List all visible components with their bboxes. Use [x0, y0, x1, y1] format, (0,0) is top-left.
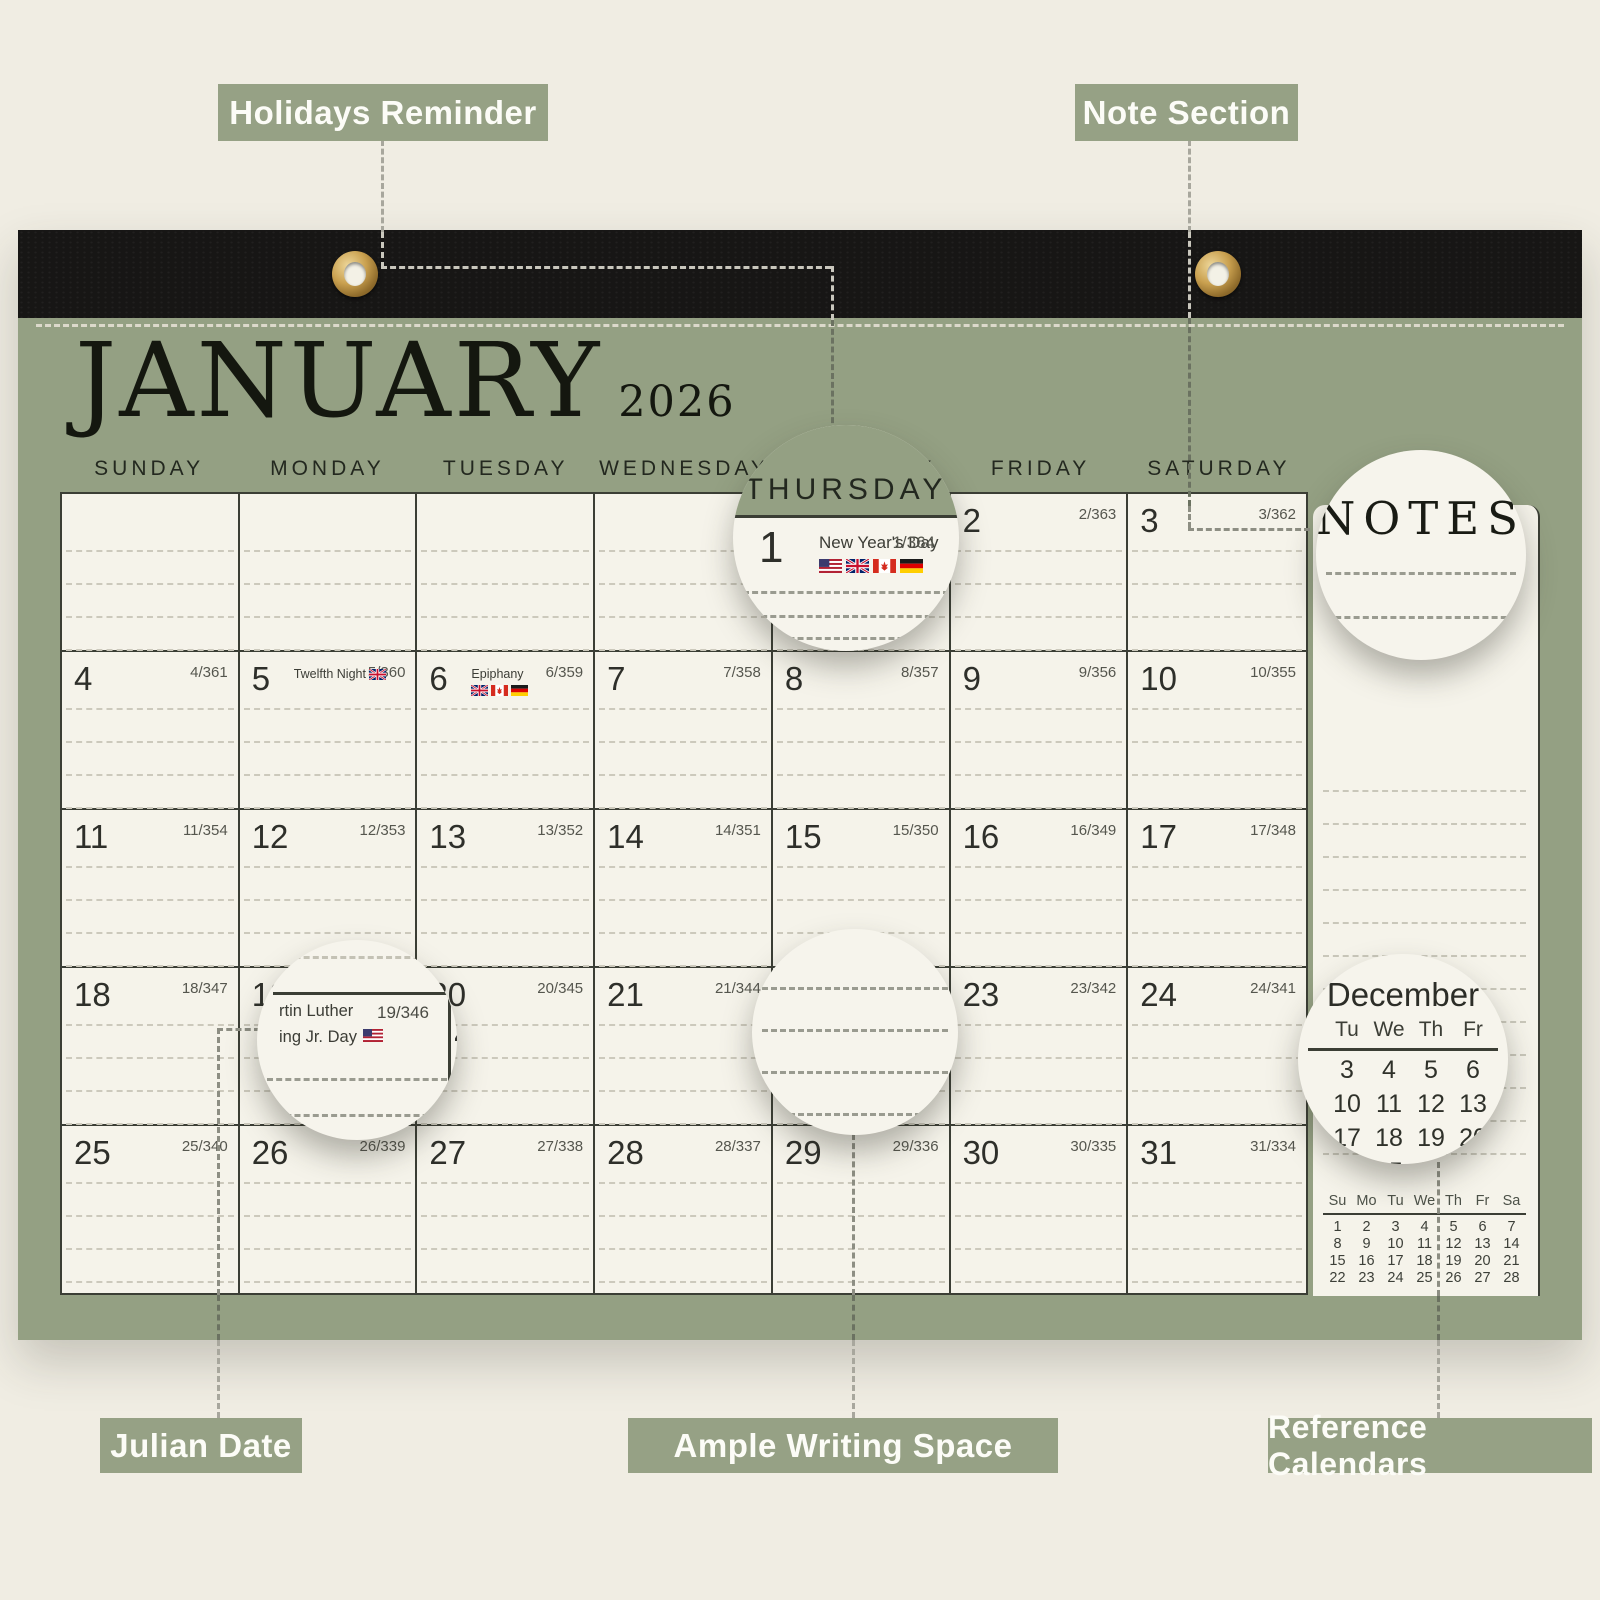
- connector-reference: [1437, 1296, 1440, 1340]
- julian-date: 11/354: [183, 822, 228, 839]
- mini-date: 4: [1410, 1219, 1439, 1235]
- holiday-text: Epiphany: [471, 667, 523, 681]
- date-number: 12: [252, 818, 289, 856]
- writing-line: [66, 1123, 234, 1125]
- mini-date: 20: [1468, 1253, 1497, 1269]
- mini-weekday: Su: [1323, 1193, 1352, 1209]
- magnifier-notes: NOTES: [1316, 450, 1526, 660]
- connector-holidays: [381, 266, 831, 269]
- holiday-name: Epiphany: [471, 666, 575, 699]
- writing-line: [244, 807, 412, 809]
- day-cell: 44/361: [62, 652, 240, 810]
- mini-date: 6: [1452, 1056, 1494, 1085]
- weekday-header: SATURDAY: [1130, 457, 1308, 491]
- day-cell: 2525/340: [62, 1126, 240, 1293]
- date-number: 6: [429, 660, 447, 698]
- writing-line: [955, 649, 1123, 651]
- notes-line: [1323, 823, 1526, 825]
- writing-line: [955, 1281, 1123, 1283]
- mini-weekday: Sa: [1497, 1193, 1526, 1209]
- writing-line: [955, 583, 1123, 585]
- connector-holidays: [381, 232, 384, 268]
- writing-line: [777, 899, 945, 901]
- mini-date: 24: [1326, 1158, 1368, 1164]
- julian-date: 20/345: [537, 980, 583, 997]
- writing-line: [421, 708, 589, 710]
- weekday-header: FRIDAY: [951, 457, 1129, 491]
- flag-ca-icon: [873, 559, 896, 573]
- writing-line: [421, 1248, 589, 1250]
- writing-line: [66, 583, 234, 585]
- writing-line: [599, 1182, 767, 1184]
- mini-date: 5: [1410, 1056, 1452, 1085]
- day-cell: [417, 494, 595, 652]
- date-number: 18: [74, 976, 111, 1014]
- writing-line: [421, 965, 589, 967]
- writing-line: [66, 1248, 234, 1250]
- label-julian-date: Julian Date: [100, 1418, 302, 1473]
- writing-line: [599, 1248, 767, 1250]
- day-cell: 77/358: [595, 652, 773, 810]
- day-cell: 66/359Epiphany: [417, 652, 595, 810]
- writing-line: [66, 932, 234, 934]
- mini-date: 9: [1352, 1236, 1381, 1252]
- writing-line: [599, 1281, 767, 1283]
- month-name: JANUARY: [75, 321, 602, 441]
- date-number: 25: [74, 1134, 111, 1172]
- writing-line: [955, 1123, 1123, 1125]
- label-ample-writing-space: Ample Writing Space: [628, 1418, 1058, 1473]
- month-grid: 11/364New Year's Day 22/36333/36244/3615…: [60, 492, 1308, 1295]
- julian-date: 9/356: [1079, 664, 1117, 681]
- mini-calendar-february: SuMoTuWeThFrSa 1234567891011121314151617…: [1323, 1193, 1526, 1286]
- mini-date: 5: [1439, 1219, 1468, 1235]
- mini-date: 10: [1381, 1236, 1410, 1252]
- writing-line: [66, 866, 234, 868]
- flag-ca-icon: [491, 685, 508, 696]
- julian-date: 30/335: [1070, 1138, 1116, 1155]
- magnified-julian-date: 19/346: [377, 1003, 429, 1023]
- day-cell: 2929/336: [773, 1126, 951, 1293]
- date-number: 31: [1140, 1134, 1177, 1172]
- date-number: 28: [607, 1134, 644, 1172]
- date-number: 23: [963, 976, 1000, 1014]
- writing-line: [421, 583, 589, 585]
- notes-line: [1323, 922, 1526, 924]
- writing-line: [66, 649, 234, 651]
- flag-us-icon: [819, 559, 842, 573]
- day-cell: 2121/344: [595, 968, 773, 1126]
- writing-line: [421, 1215, 589, 1217]
- day-cell: 33/362: [1128, 494, 1306, 652]
- date-number: 14: [607, 818, 644, 856]
- writing-line: [244, 583, 412, 585]
- writing-line: [66, 1057, 234, 1059]
- writing-line: [777, 1281, 945, 1283]
- connector-reference: [1437, 1162, 1440, 1296]
- writing-line: [1132, 708, 1302, 710]
- cell-border-line: [448, 992, 451, 1140]
- writing-line: [955, 932, 1123, 934]
- writing-line: [66, 1090, 234, 1092]
- writing-line: [244, 1281, 412, 1283]
- writing-line: [955, 741, 1123, 743]
- writing-line: [421, 741, 589, 743]
- writing-line: [421, 774, 589, 776]
- label-reference-calendars: Reference Calendars: [1268, 1418, 1592, 1473]
- mini-date: 25: [1410, 1270, 1439, 1286]
- writing-line: [599, 866, 767, 868]
- mini-date: 3: [1381, 1219, 1410, 1235]
- writing-line: [955, 1090, 1123, 1092]
- day-cell: 88/357: [773, 652, 951, 810]
- date-number: 9: [963, 660, 981, 698]
- day-cell: 99/356: [951, 652, 1129, 810]
- day-cell: 2323/342: [951, 968, 1129, 1126]
- writing-line: [1132, 932, 1302, 934]
- date-number: 2: [963, 502, 981, 540]
- julian-date: 24/341: [1250, 980, 1296, 997]
- partial-next-date: 2: [453, 1006, 457, 1051]
- writing-line: [244, 866, 412, 868]
- mini-date: 19: [1439, 1253, 1468, 1269]
- writing-line: [1132, 1182, 1302, 1184]
- writing-line: [599, 774, 767, 776]
- writing-line: [66, 708, 234, 710]
- julian-date: 29/336: [893, 1138, 939, 1155]
- writing-line: [599, 1090, 767, 1092]
- julian-date: 8/357: [901, 664, 939, 681]
- writing-line: [1132, 1281, 1302, 1283]
- writing-line: [421, 1090, 589, 1092]
- writing-line: [599, 1123, 767, 1125]
- writing-line: [421, 866, 589, 868]
- writing-line: [1132, 1215, 1302, 1217]
- mini-weekday: We: [1410, 1193, 1439, 1209]
- connector-ample-writing: [852, 1295, 855, 1340]
- mini-date: 3: [1326, 1056, 1368, 1085]
- writing-line: [955, 616, 1123, 618]
- julian-date: 3/362: [1258, 506, 1296, 523]
- magnified-notes-title: NOTES: [1316, 492, 1526, 545]
- writing-line: [421, 616, 589, 618]
- writing-line: [244, 1215, 412, 1217]
- day-cell: 55/360Twelfth Night: [240, 652, 418, 810]
- holiday-flags: [471, 685, 528, 696]
- writing-line: [955, 1057, 1123, 1059]
- mini-weekday: Th: [1410, 1018, 1452, 1042]
- writing-line: [421, 1281, 589, 1283]
- julian-date: 17/348: [1250, 822, 1296, 839]
- day-cell: 2727/338: [417, 1126, 595, 1293]
- date-number: 21: [607, 976, 644, 1014]
- connector-note-section: [1188, 528, 1310, 531]
- connector-julian-date: [217, 1340, 220, 1418]
- writing-line: [955, 866, 1123, 868]
- julian-date: 21/344: [715, 980, 761, 997]
- flag-uk-icon: [846, 559, 869, 573]
- mini-date: 7: [1497, 1219, 1526, 1235]
- mini-weekday: We: [1368, 1018, 1410, 1042]
- leather-hanging-strip: [18, 230, 1582, 318]
- mini-date: 15: [1323, 1253, 1352, 1269]
- mini-date: 12: [1410, 1090, 1452, 1119]
- writing-line: [955, 965, 1123, 967]
- mini-date: 8: [1323, 1236, 1352, 1252]
- writing-line: [421, 1123, 589, 1125]
- mini-date: 22: [1323, 1270, 1352, 1286]
- writing-line: [66, 899, 234, 901]
- mini-weekday: Fr: [1468, 1193, 1497, 1209]
- magnified-date: 1: [759, 523, 783, 573]
- mini-date: 20: [1452, 1124, 1494, 1153]
- magnified-holiday-line2: ing Jr. Day: [279, 1028, 383, 1047]
- day-cell: 1818/347: [62, 968, 240, 1126]
- magnified-thursday-header: THURSDAY: [733, 473, 959, 507]
- writing-line: [1132, 965, 1302, 967]
- cell-border-line: [273, 992, 449, 995]
- writing-line: [599, 649, 767, 651]
- julian-date: 10/355: [1250, 664, 1296, 681]
- writing-line: [1132, 1057, 1302, 1059]
- date-number: 17: [1140, 818, 1177, 856]
- writing-line: [421, 649, 589, 651]
- mini-date: 23: [1352, 1270, 1381, 1286]
- julian-date: 13/352: [537, 822, 583, 839]
- flag-de-icon: [511, 685, 528, 696]
- connector-julian-date: [217, 1295, 220, 1340]
- writing-line: [1132, 1090, 1302, 1092]
- writing-line: [244, 1182, 412, 1184]
- mini-date: 11: [1410, 1236, 1439, 1252]
- mini-weekday: Mo: [1352, 1193, 1381, 1209]
- connector-holidays: [381, 140, 384, 232]
- mini-weekday: Th: [1439, 1193, 1468, 1209]
- connector-note-section: [1188, 232, 1191, 318]
- connector-ample-writing: [852, 1340, 855, 1418]
- magnified-december-title: December: [1298, 976, 1508, 1014]
- magnifier-new-years-day: THURSDAY 1 New Year's Day 1/364: [733, 425, 959, 651]
- writing-line: [777, 866, 945, 868]
- writing-line: [1132, 774, 1302, 776]
- julian-date: 14/351: [715, 822, 761, 839]
- mini-weekday: Tu: [1381, 1193, 1410, 1209]
- writing-line: [599, 741, 767, 743]
- julian-date: 28/337: [715, 1138, 761, 1155]
- writing-line: [66, 1024, 234, 1026]
- mini-date: 25: [1368, 1158, 1410, 1164]
- writing-line: [955, 708, 1123, 710]
- writing-line: [244, 774, 412, 776]
- mini-date: 19: [1410, 1124, 1452, 1153]
- mini-date: 13: [1468, 1236, 1497, 1252]
- writing-line: [244, 550, 412, 552]
- notes-line: [1323, 790, 1526, 792]
- magnifier-writing-space: [752, 929, 958, 1135]
- writing-line: [1132, 649, 1302, 651]
- writing-line: [777, 1248, 945, 1250]
- connector-holidays: [831, 266, 834, 320]
- writing-line: [244, 649, 412, 651]
- writing-line: [1132, 1123, 1302, 1125]
- writing-line: [599, 708, 767, 710]
- connector-ample-writing: [852, 1134, 855, 1295]
- date-number: 5: [252, 660, 270, 698]
- writing-line: [66, 1182, 234, 1184]
- date-number: 16: [963, 818, 1000, 856]
- writing-line: [244, 708, 412, 710]
- julian-date: 7/358: [723, 664, 761, 681]
- holiday-flags: [819, 559, 923, 573]
- writing-line: [777, 1215, 945, 1217]
- mini-date: 4: [1368, 1056, 1410, 1085]
- weekday-header: MONDAY: [238, 457, 416, 491]
- date-number: 30: [963, 1134, 1000, 1172]
- day-cell: 3030/335: [951, 1126, 1129, 1293]
- grommet-icon: [1195, 251, 1241, 297]
- writing-line: [777, 774, 945, 776]
- day-cell: 1313/352: [417, 810, 595, 968]
- writing-line: [1132, 583, 1302, 585]
- mini-date: 1: [1323, 1219, 1352, 1235]
- weekday-header-row: SUNDAYMONDAYTUESDAYWEDNESDAYTHURSDAYFRID…: [60, 457, 1308, 491]
- julian-date: 15/350: [893, 822, 939, 839]
- day-cell: 2626/339: [240, 1126, 418, 1293]
- connector-note-section: [1188, 318, 1191, 506]
- mini-date: 13: [1452, 1090, 1494, 1119]
- weekday-header: SUNDAY: [60, 457, 238, 491]
- writing-line: [244, 741, 412, 743]
- connector-note-section: [1188, 506, 1191, 528]
- mini-weekday: Tu: [1326, 1018, 1368, 1042]
- writing-line: [66, 807, 234, 809]
- writing-line: [599, 807, 767, 809]
- date-number: 10: [1140, 660, 1177, 698]
- writing-line: [66, 1281, 234, 1283]
- cell-border-line: [733, 515, 959, 518]
- writing-line: [777, 1182, 945, 1184]
- writing-line: [955, 1248, 1123, 1250]
- writing-line: [955, 899, 1123, 901]
- writing-line: [599, 1215, 767, 1217]
- writing-line: [955, 550, 1123, 552]
- mini-calendar-dates: 1234567891011121314151617181920212223242…: [1323, 1219, 1526, 1286]
- writing-line: [66, 616, 234, 618]
- connector-note-section: [1188, 140, 1191, 232]
- writing-line: [777, 807, 945, 809]
- date-number: 29: [785, 1134, 822, 1172]
- mini-date: 10: [1326, 1090, 1368, 1119]
- writing-line: [1132, 807, 1302, 809]
- mini-calendar-weekday-row: SuMoTuWeThFrSa: [1323, 1193, 1526, 1215]
- mini-date: 6: [1468, 1219, 1497, 1235]
- mini-date: 12: [1439, 1236, 1468, 1252]
- writing-line: [66, 550, 234, 552]
- writing-line: [421, 807, 589, 809]
- julian-date: 2/363: [1079, 506, 1117, 523]
- magnifier-mlk-day: rtin Luther 19/346 ing Jr. Day 2: [257, 940, 457, 1140]
- writing-line: [599, 965, 767, 967]
- mini-date: 24: [1381, 1270, 1410, 1286]
- date-number: 15: [785, 818, 822, 856]
- day-cell: 2424/341: [1128, 968, 1306, 1126]
- writing-line: [777, 708, 945, 710]
- writing-line: [421, 1182, 589, 1184]
- mini-date: 14: [1497, 1236, 1526, 1252]
- magnified-julian-date: 1/364: [892, 533, 935, 553]
- mini-date: 27: [1468, 1270, 1497, 1286]
- writing-line: [66, 774, 234, 776]
- mini-date: 16: [1352, 1253, 1381, 1269]
- julian-date: 16/349: [1070, 822, 1116, 839]
- month-title: JANUARY2026: [75, 330, 736, 433]
- writing-line: [955, 807, 1123, 809]
- date-number: 3: [1140, 502, 1158, 540]
- holiday-flags: [369, 669, 386, 680]
- writing-line: [777, 741, 945, 743]
- mini-date: 17: [1326, 1124, 1368, 1153]
- writing-line: [421, 932, 589, 934]
- magnified-holiday-line1: rtin Luther: [279, 1002, 353, 1021]
- writing-line: [599, 1057, 767, 1059]
- mini-date: 11: [1368, 1090, 1410, 1119]
- flag-uk-icon: [471, 685, 488, 696]
- julian-date: 26/339: [360, 1138, 406, 1155]
- writing-line: [599, 932, 767, 934]
- writing-line: [244, 616, 412, 618]
- holiday-name: Twelfth Night: [294, 666, 398, 682]
- notes-line: [1323, 856, 1526, 858]
- mini-date: 26: [1439, 1270, 1468, 1286]
- writing-line: [1132, 616, 1302, 618]
- mini-date: 28: [1497, 1270, 1526, 1286]
- mini-calendar-rule: [1308, 1048, 1498, 1051]
- magnified-december-dates: 3456101112131718192024252627: [1326, 1056, 1494, 1164]
- calendar-product-image: Holidays Reminder Note Section Julian Da…: [0, 0, 1600, 1600]
- mini-date: 27: [1452, 1158, 1494, 1164]
- writing-line: [599, 1024, 767, 1026]
- julian-date: 31/334: [1250, 1138, 1296, 1155]
- julian-date: 4/361: [190, 664, 228, 681]
- holiday-text: Twelfth Night: [294, 667, 370, 681]
- date-number: 7: [607, 660, 625, 698]
- mini-date: 18: [1368, 1124, 1410, 1153]
- writing-line: [244, 899, 412, 901]
- writing-line: [1132, 1248, 1302, 1250]
- writing-line: [1132, 899, 1302, 901]
- flag-uk-icon: [369, 669, 386, 680]
- mini-date: 17: [1381, 1253, 1410, 1269]
- writing-line: [599, 616, 767, 618]
- mini-date: 18: [1410, 1253, 1439, 1269]
- mini-date: 26: [1410, 1158, 1452, 1164]
- label-holidays-reminder: Holidays Reminder: [218, 84, 548, 141]
- notes-line: [1323, 889, 1526, 891]
- julian-date: 27/338: [537, 1138, 583, 1155]
- day-cell: 1111/354: [62, 810, 240, 968]
- day-cell: [62, 494, 240, 652]
- weekday-header: TUESDAY: [417, 457, 595, 491]
- writing-line: [244, 1248, 412, 1250]
- calendar-pad: JANUARY2026 SUNDAYMONDAYTUESDAYWEDNESDAY…: [18, 230, 1582, 1340]
- julian-date: 25/340: [182, 1138, 228, 1155]
- connector-julian-date: [217, 1028, 220, 1295]
- date-number: 13: [429, 818, 466, 856]
- day-cell: 3131/334: [1128, 1126, 1306, 1293]
- writing-line: [599, 899, 767, 901]
- writing-line: [1132, 550, 1302, 552]
- mini-date: 21: [1497, 1253, 1526, 1269]
